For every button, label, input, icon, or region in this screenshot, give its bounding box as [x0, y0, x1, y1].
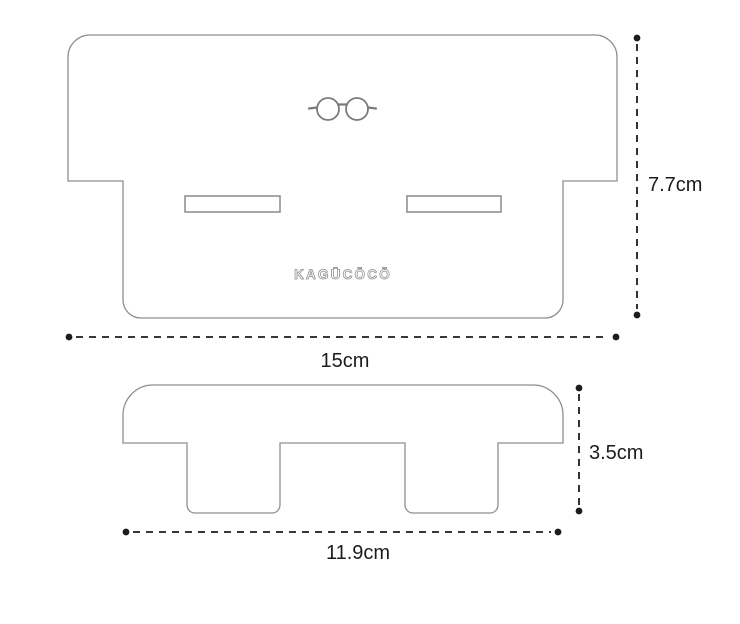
glasses-right-lens — [346, 98, 368, 120]
front-height-dimension-label: 7.7cm — [648, 174, 702, 196]
side-view-outline — [123, 385, 563, 513]
front-width-dimension: 15cm — [66, 334, 620, 372]
front-view: KAGŪCŌCŌ — [68, 35, 617, 318]
front-width-dimension-dot-right — [613, 334, 620, 341]
diagram-canvas: KAGŪCŌCŌ 7.7cm 15cm 3.5cm — [0, 0, 740, 624]
front-width-dimension-label: 15cm — [321, 350, 370, 372]
brand-logo: KAGŪCŌCŌ — [294, 267, 392, 282]
side-width-dimension-dot-right — [555, 529, 562, 536]
side-height-dimension: 3.5cm — [576, 385, 644, 515]
side-height-dimension-dot-top — [576, 385, 583, 392]
glasses-left-temple — [309, 108, 317, 109]
side-width-dimension-label: 11.9cm — [326, 542, 390, 564]
front-width-dimension-dot-left — [66, 334, 73, 341]
front-left-slot — [185, 196, 280, 212]
side-view — [123, 385, 563, 513]
side-height-dimension-label: 3.5cm — [589, 442, 643, 464]
dimension-diagram: KAGŪCŌCŌ 7.7cm 15cm 3.5cm — [0, 0, 740, 624]
glasses-left-lens — [317, 98, 339, 120]
glasses-icon — [309, 98, 376, 120]
side-width-dimension-dot-left — [123, 529, 130, 536]
side-width-dimension: 11.9cm — [123, 529, 562, 564]
front-height-dimension-dot-bottom — [634, 312, 641, 319]
front-height-dimension-dot-top — [634, 35, 641, 42]
front-right-slot — [407, 196, 501, 212]
side-height-dimension-dot-bottom — [576, 508, 583, 515]
front-height-dimension: 7.7cm — [634, 35, 703, 319]
glasses-right-temple — [368, 108, 376, 109]
